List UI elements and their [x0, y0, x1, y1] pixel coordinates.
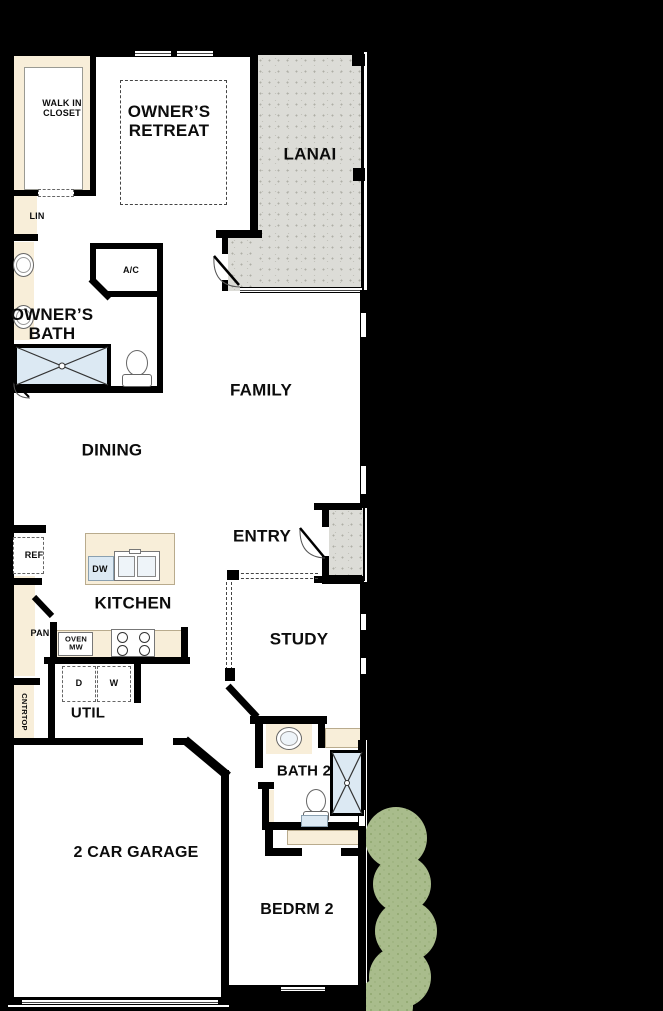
sink-basin: [137, 556, 156, 577]
wall: [90, 243, 163, 249]
wall-post: [227, 570, 239, 580]
lanai-nook-floor: [228, 237, 258, 291]
callout-pan: PAN: [31, 628, 50, 638]
burner-icon: [139, 645, 150, 656]
room-label-lin: LIN: [29, 211, 44, 221]
room-label-kitchen: KITCHEN: [95, 593, 172, 612]
wall: [8, 678, 40, 685]
room-label-owners-bath: OWNER’S BATH: [11, 305, 94, 343]
wall: [8, 578, 42, 585]
lanai-post: [353, 168, 365, 181]
callout-dw: DW: [92, 564, 107, 574]
bath2-bench: [301, 815, 328, 827]
study-dashed-opening: [226, 582, 232, 670]
room-label-walk-in-closet: WALK IN CLOSET: [42, 98, 81, 118]
entry-porch-floor: [329, 508, 364, 578]
floor-plan-canvas: WALK IN CLOSET OWNER’S RETREAT LANAI LIN…: [0, 0, 663, 1011]
bath2-shower-icon: [330, 750, 364, 816]
window-icon: [360, 313, 367, 337]
background-patch: [229, 993, 368, 1007]
window-icon: [135, 50, 171, 57]
window-icon: [360, 658, 367, 674]
lanai-floor: [256, 55, 364, 291]
wall: [221, 770, 229, 1005]
wall: [90, 52, 96, 192]
lanai-post: [352, 54, 365, 66]
burner-icon: [117, 632, 128, 643]
room-label-garage: 2 CAR GARAGE: [73, 844, 198, 862]
walkin-closet-inner: [24, 67, 83, 190]
wall: [173, 738, 189, 745]
room-label-bedrm2: BEDRM 2: [260, 901, 333, 919]
room-label-dining: DINING: [82, 440, 143, 459]
wall: [250, 52, 258, 235]
sink-basin: [16, 257, 31, 273]
sink-basin: [118, 556, 135, 577]
lanai-edge: [256, 52, 364, 55]
shrub-icon: [355, 800, 438, 1011]
room-label-owners-retreat: OWNER’S RETREAT: [128, 102, 211, 140]
wall: [8, 234, 38, 241]
sink-basin: [280, 731, 298, 746]
room-label-entry: ENTRY: [233, 526, 291, 545]
wall: [265, 848, 302, 856]
wall: [8, 738, 143, 745]
faucet-icon: [129, 549, 141, 554]
wall: [96, 50, 135, 57]
wall: [44, 657, 190, 664]
wall-post: [225, 668, 235, 681]
wall: [314, 503, 362, 510]
closet-opening: [38, 189, 74, 197]
wall: [8, 525, 46, 533]
toilet-icon: [126, 350, 148, 376]
window-icon: [360, 614, 367, 630]
wall: [255, 716, 263, 768]
wall: [74, 190, 96, 196]
callout-oven-mw: OVEN MW: [65, 636, 87, 653]
wall: [48, 657, 55, 745]
wall: [8, 52, 94, 56]
wall: [50, 622, 57, 660]
room-label-study: STUDY: [270, 629, 329, 648]
bedrm2-closet-shelf: [287, 830, 366, 845]
toilet-tank: [122, 374, 152, 387]
wall: [322, 556, 329, 577]
window-icon: [281, 986, 325, 992]
wall: [90, 243, 96, 281]
callout-washer: W: [110, 678, 119, 688]
window-icon: [177, 50, 213, 57]
wall: [157, 243, 163, 393]
wall: [8, 190, 38, 196]
wall: [222, 280, 228, 291]
wall: [322, 575, 362, 584]
study-dashed-opening: [236, 573, 318, 579]
retreat-tray-ceiling: [120, 80, 227, 205]
porch-edge: [363, 505, 365, 581]
wall: [322, 510, 329, 527]
room-label-family: FAMILY: [230, 380, 292, 399]
callout-cntrtop: CNTRTOP: [20, 693, 28, 731]
owner-bath-shower-icon: [13, 344, 111, 388]
lanai-slider-window-icon: [240, 287, 362, 293]
wall: [258, 782, 274, 789]
garage-door: [22, 999, 218, 1005]
room-label-bath2: BATH 2: [277, 764, 331, 781]
wall: [216, 230, 262, 238]
window-icon: [360, 466, 367, 494]
callout-ref: REF: [25, 550, 44, 560]
room-label-ac: A/C: [123, 265, 139, 275]
room-label-util: UTIL: [71, 706, 105, 723]
toilet-icon: [306, 789, 326, 813]
pantry-shelf: [13, 576, 35, 676]
wall: [104, 291, 163, 297]
wall: [318, 720, 325, 748]
wall: [222, 238, 228, 254]
wall: [134, 657, 141, 703]
burner-icon: [117, 645, 128, 656]
burner-icon: [139, 632, 150, 643]
room-label-lanai: LANAI: [284, 144, 337, 163]
callout-dryer: D: [76, 678, 83, 688]
